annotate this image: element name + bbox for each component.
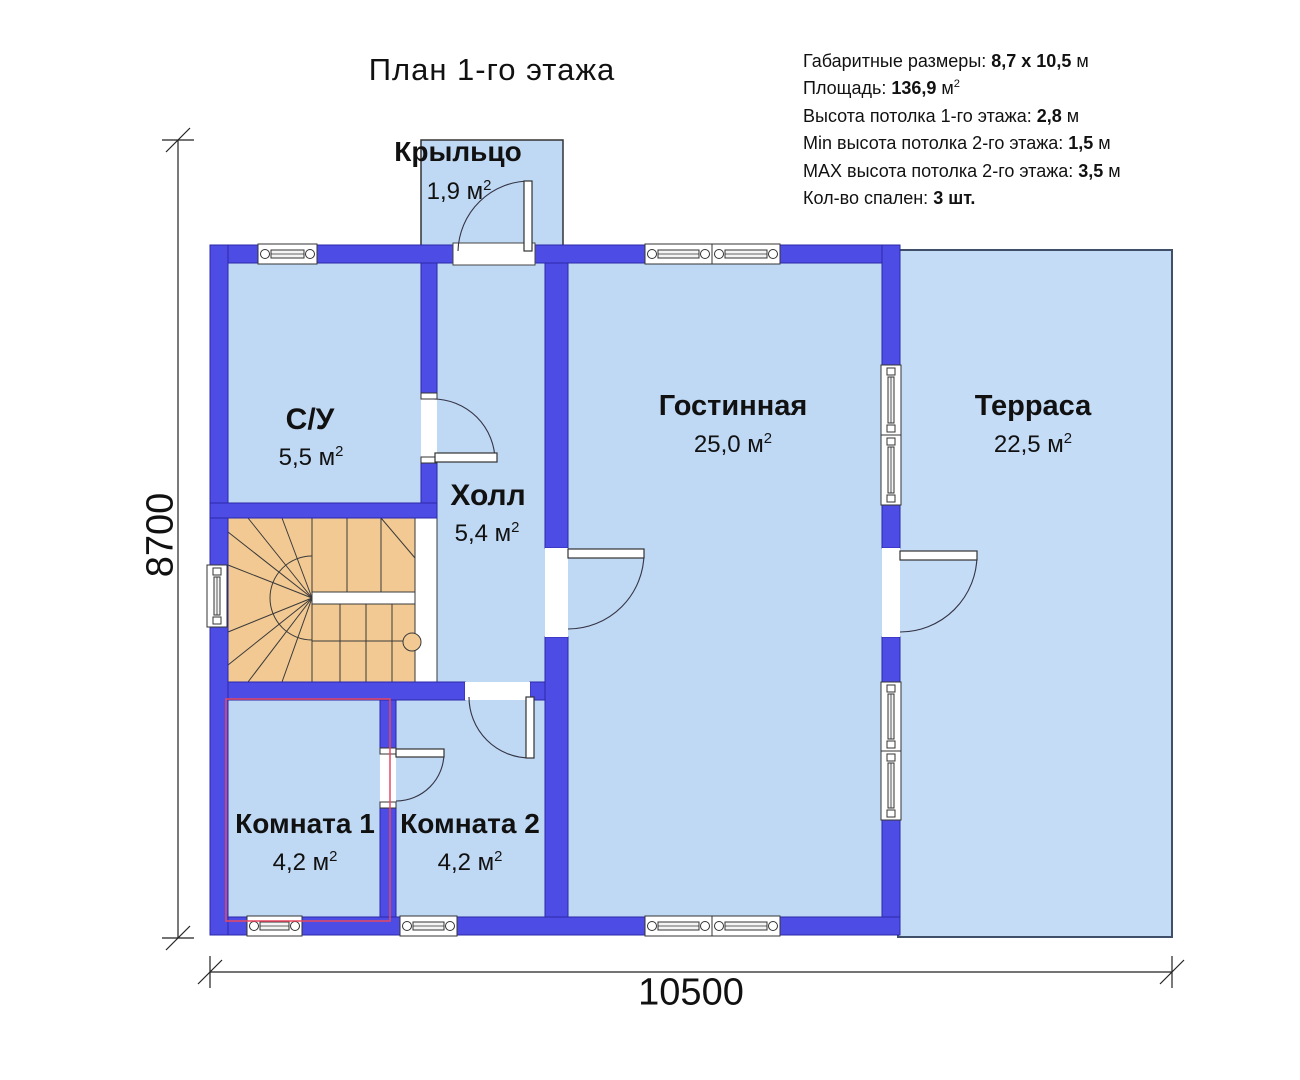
window-icon	[247, 916, 302, 936]
info-block: Габаритные размеры: 8,7 x 10,5 м Площадь…	[803, 46, 1121, 210]
info-row-area: Площадь: 136,9 м2	[803, 73, 1121, 100]
rooms-door-opening	[380, 748, 396, 808]
window-icon	[881, 682, 901, 751]
room-area-hall: 5,4 м2	[455, 520, 520, 548]
hall-door-opening	[465, 682, 530, 700]
terrace-door-opening	[882, 548, 900, 637]
room-area-terrace: 22,5 м2	[994, 431, 1072, 459]
room-label-bathroom: С/У	[286, 403, 335, 437]
page-title: План 1-го этажа	[369, 52, 616, 88]
window-icon	[258, 244, 317, 264]
width-dimension-label: 10500	[638, 972, 744, 1015]
room-label-terrace: Терраса	[975, 390, 1092, 423]
terrace-area	[898, 250, 1172, 937]
room-area-room1: 4,2 м2	[273, 849, 338, 877]
porch-door-opening	[453, 243, 535, 265]
height-dimension-label: 8700	[140, 493, 183, 578]
window-icon	[712, 244, 780, 264]
info-row-ceiling2-max: MAX высота потолка 2-го этажа: 3,5 м	[803, 156, 1121, 183]
window-icon	[881, 435, 901, 505]
info-row-ceiling2-min: Min высота потолка 2-го этажа: 1,5 м	[803, 128, 1121, 155]
room-area-porch: 1,9 м2	[427, 178, 492, 206]
room-label-living: Гостинная	[659, 390, 808, 423]
window-icon	[400, 916, 457, 936]
room-label-hall: Холл	[450, 479, 525, 513]
window-icon	[207, 565, 227, 627]
window-icon	[645, 916, 712, 936]
room-area-bathroom: 5,5 м2	[279, 444, 344, 472]
info-row-ceiling1: Высота потолка 1-го этажа: 2,8 м	[803, 101, 1121, 128]
living-door-opening	[545, 548, 568, 637]
window-icon	[712, 916, 780, 936]
info-row-dimensions: Габаритные размеры: 8,7 x 10,5 м	[803, 46, 1121, 73]
stairs	[228, 518, 437, 682]
window-icon	[881, 751, 901, 820]
stair-newel-post	[403, 633, 421, 651]
room-area-living: 25,0 м2	[694, 431, 772, 459]
room-label-room2: Комната 2	[400, 808, 540, 840]
room-label-room1: Комната 1	[235, 808, 375, 840]
floor-plan-page: План 1-го этажа Габаритные размеры: 8,7 …	[0, 0, 1300, 1080]
room-area-room2: 4,2 м2	[438, 849, 503, 877]
window-icon	[881, 365, 901, 435]
room-label-porch: Крыльцо	[394, 136, 521, 168]
window-icon	[645, 244, 712, 264]
info-row-bedrooms: Кол-во спален: 3 шт.	[803, 183, 1121, 210]
